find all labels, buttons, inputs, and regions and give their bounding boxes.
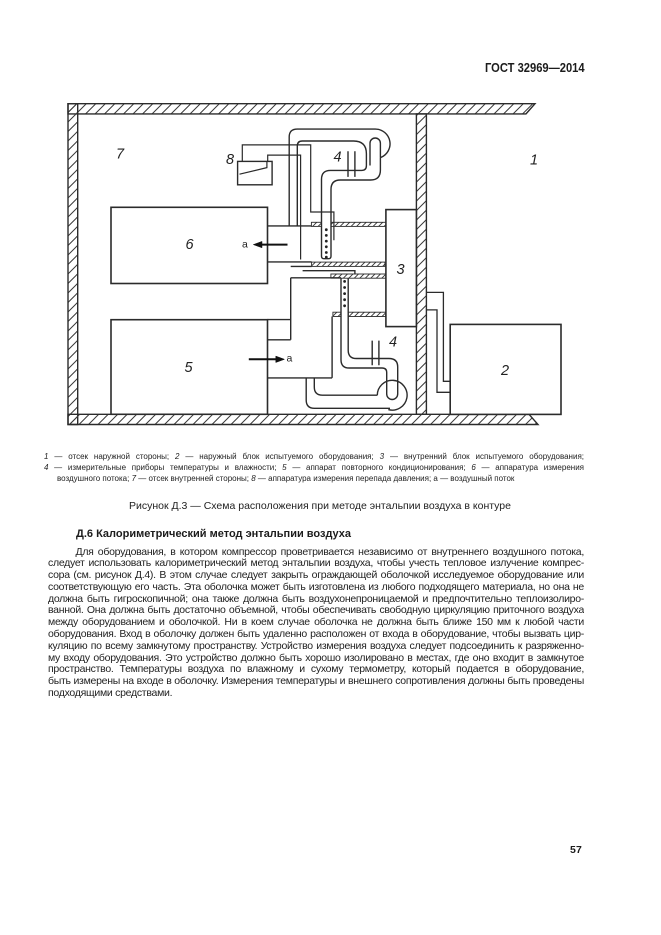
svg-text:5: 5 bbox=[185, 360, 194, 376]
svg-text:а: а bbox=[242, 239, 248, 251]
svg-text:1: 1 bbox=[530, 153, 538, 169]
svg-text:а: а bbox=[287, 353, 293, 365]
svg-text:3: 3 bbox=[397, 262, 405, 278]
svg-text:4: 4 bbox=[389, 335, 397, 351]
svg-text:2: 2 bbox=[500, 363, 509, 379]
svg-text:7: 7 bbox=[116, 147, 125, 163]
svg-text:4: 4 bbox=[334, 150, 342, 166]
svg-text:8: 8 bbox=[226, 152, 234, 168]
svg-text:6: 6 bbox=[186, 237, 195, 253]
